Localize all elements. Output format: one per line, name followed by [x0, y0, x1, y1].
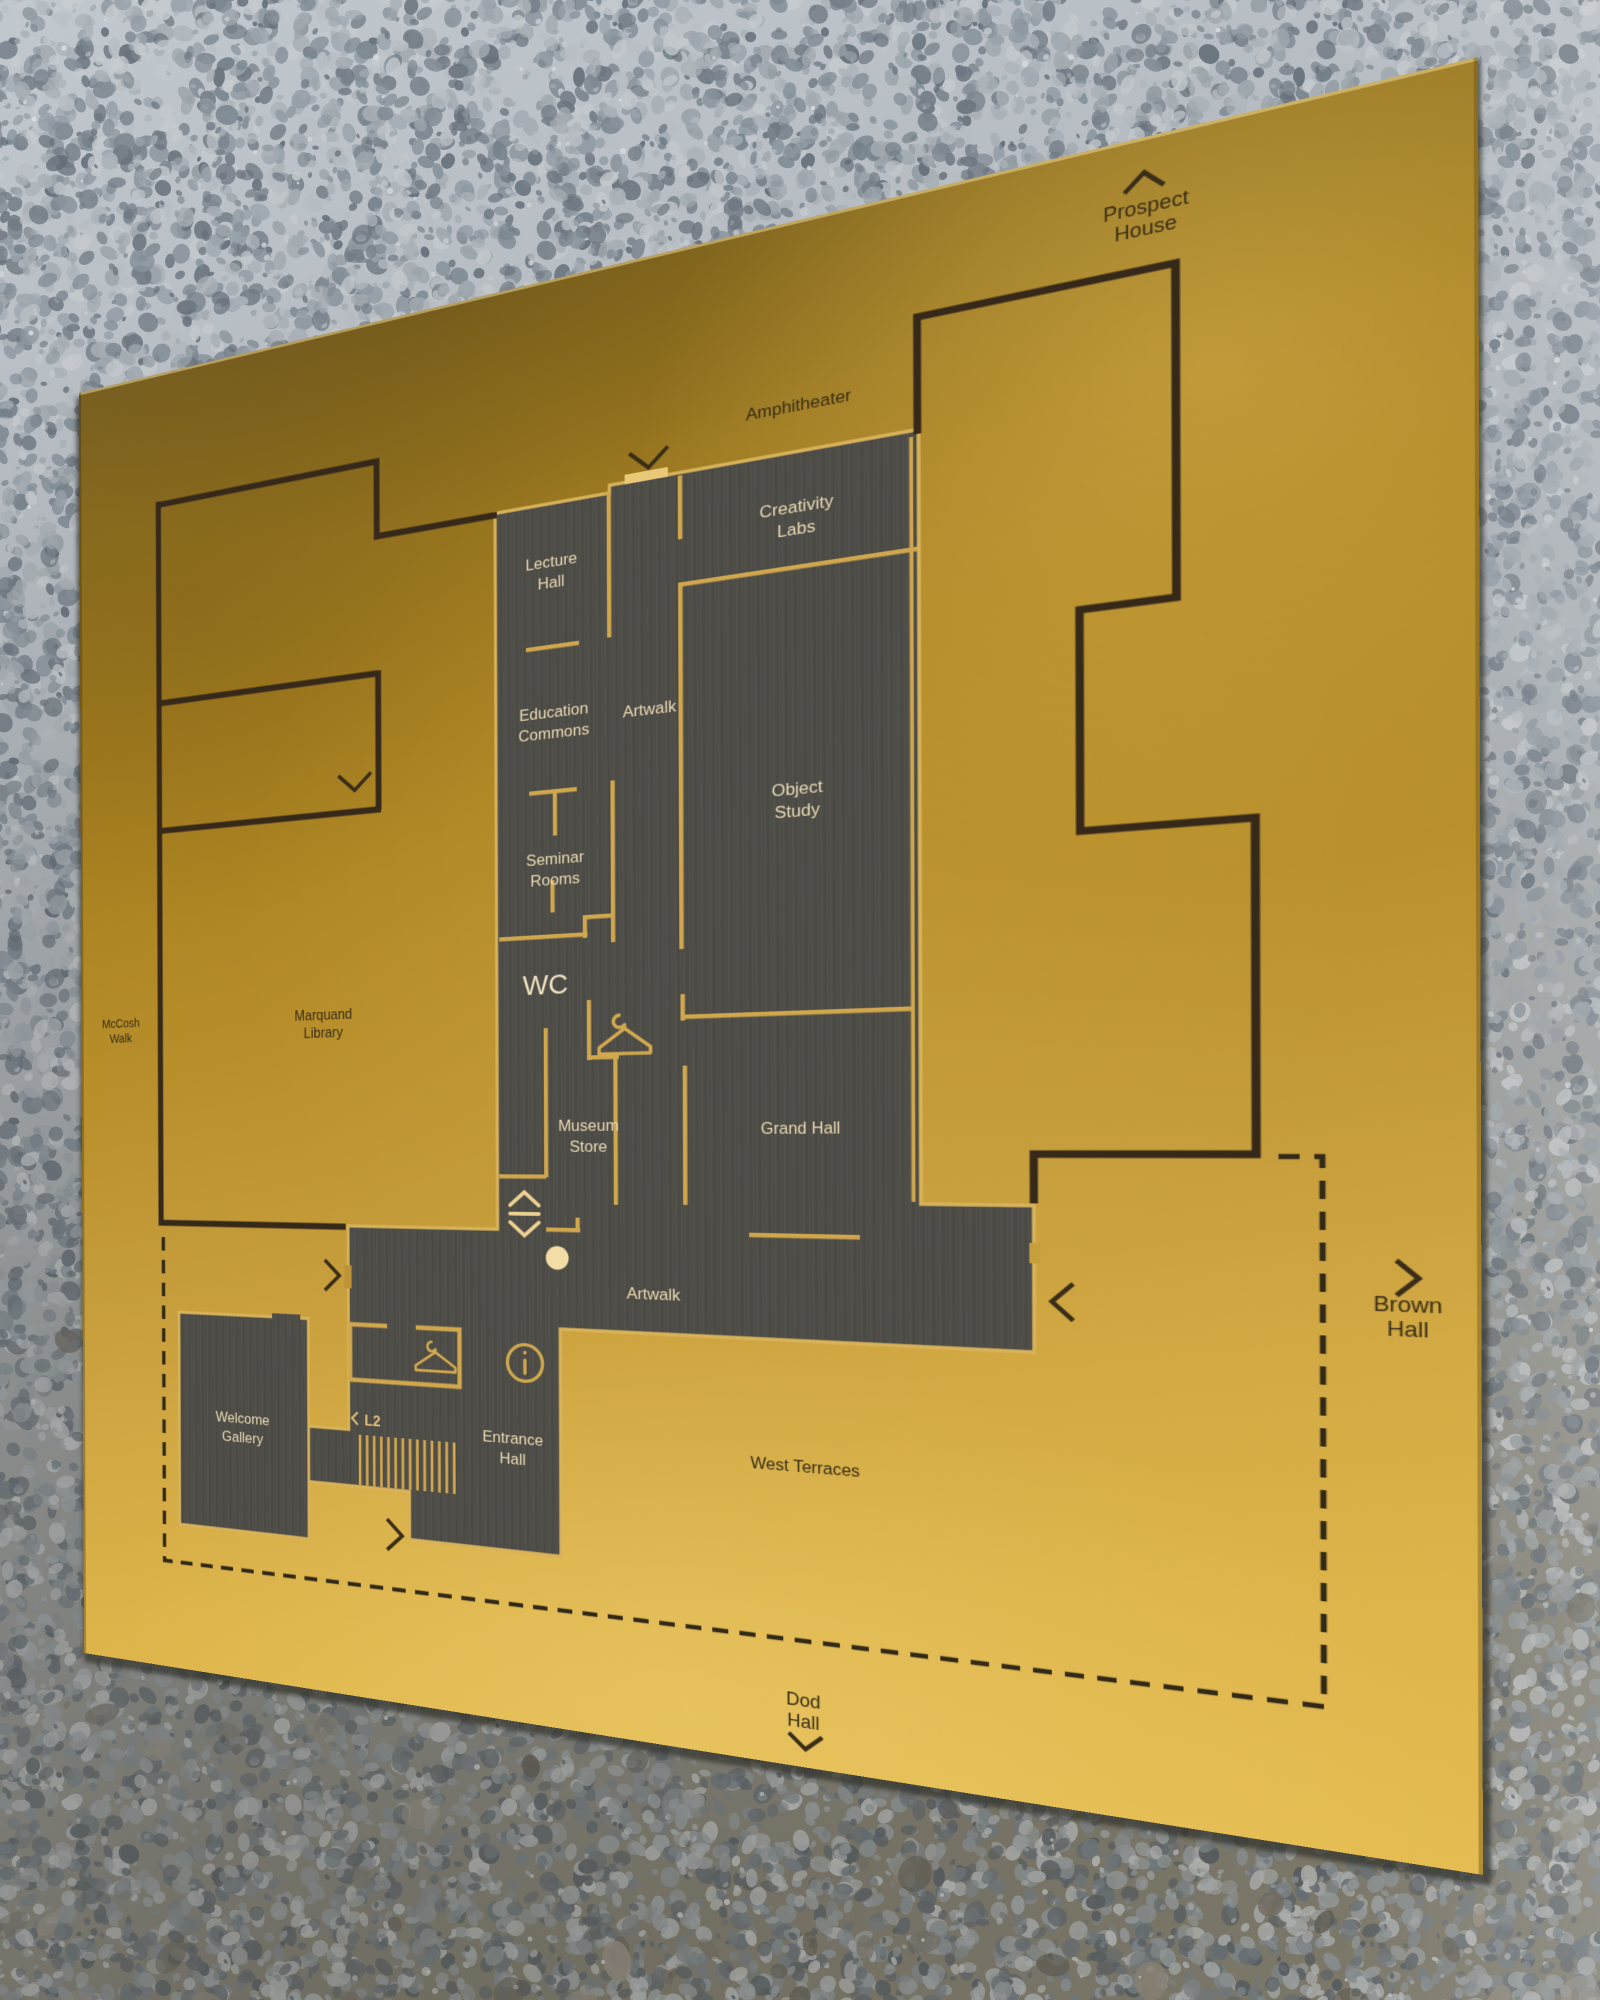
- svg-text:Study: Study: [775, 799, 821, 823]
- svg-text:Store: Store: [569, 1137, 607, 1156]
- svg-text:Hall: Hall: [500, 1449, 526, 1469]
- svg-text:Hall: Hall: [787, 1708, 819, 1734]
- svg-text:Gallery: Gallery: [222, 1427, 264, 1447]
- svg-text:Grand Hall: Grand Hall: [761, 1119, 841, 1138]
- svg-text:McCosh: McCosh: [102, 1017, 140, 1031]
- svg-text:Rooms: Rooms: [530, 868, 580, 890]
- svg-text:Brown: Brown: [1373, 1293, 1442, 1318]
- svg-text:WC: WC: [523, 967, 569, 1001]
- svg-text:Museum: Museum: [558, 1116, 619, 1135]
- svg-text:Marquand: Marquand: [294, 1006, 352, 1024]
- svg-text:Walk: Walk: [110, 1032, 133, 1046]
- svg-text:L2: L2: [364, 1411, 380, 1430]
- svg-text:Amphitheater: Amphitheater: [746, 384, 852, 424]
- svg-text:Library: Library: [304, 1024, 344, 1041]
- svg-text:Hall: Hall: [1387, 1318, 1429, 1342]
- svg-text:West Terraces: West Terraces: [751, 1453, 861, 1481]
- svg-text:Artwalk: Artwalk: [627, 1284, 681, 1305]
